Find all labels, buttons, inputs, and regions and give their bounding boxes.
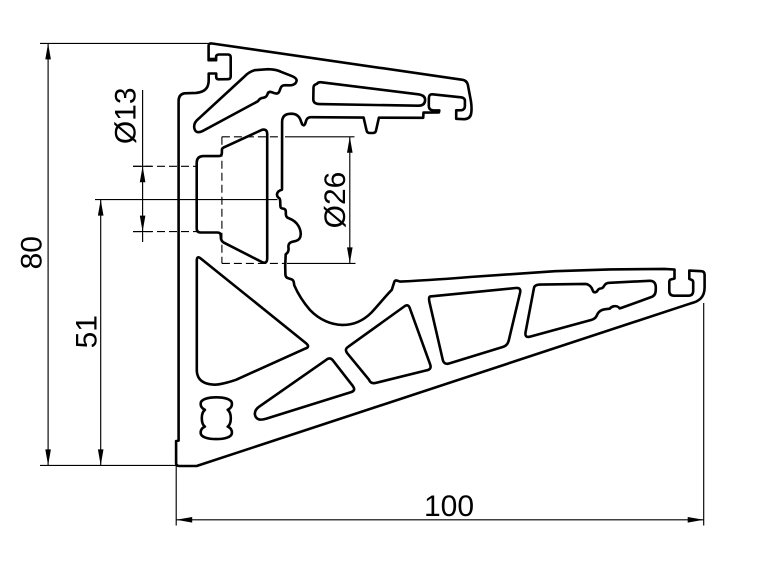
svg-text:51: 51 [71, 315, 104, 348]
svg-text:Ø26: Ø26 [319, 172, 352, 229]
svg-text:Ø13: Ø13 [110, 87, 143, 144]
svg-text:80: 80 [16, 236, 49, 269]
svg-text:100: 100 [424, 490, 474, 523]
